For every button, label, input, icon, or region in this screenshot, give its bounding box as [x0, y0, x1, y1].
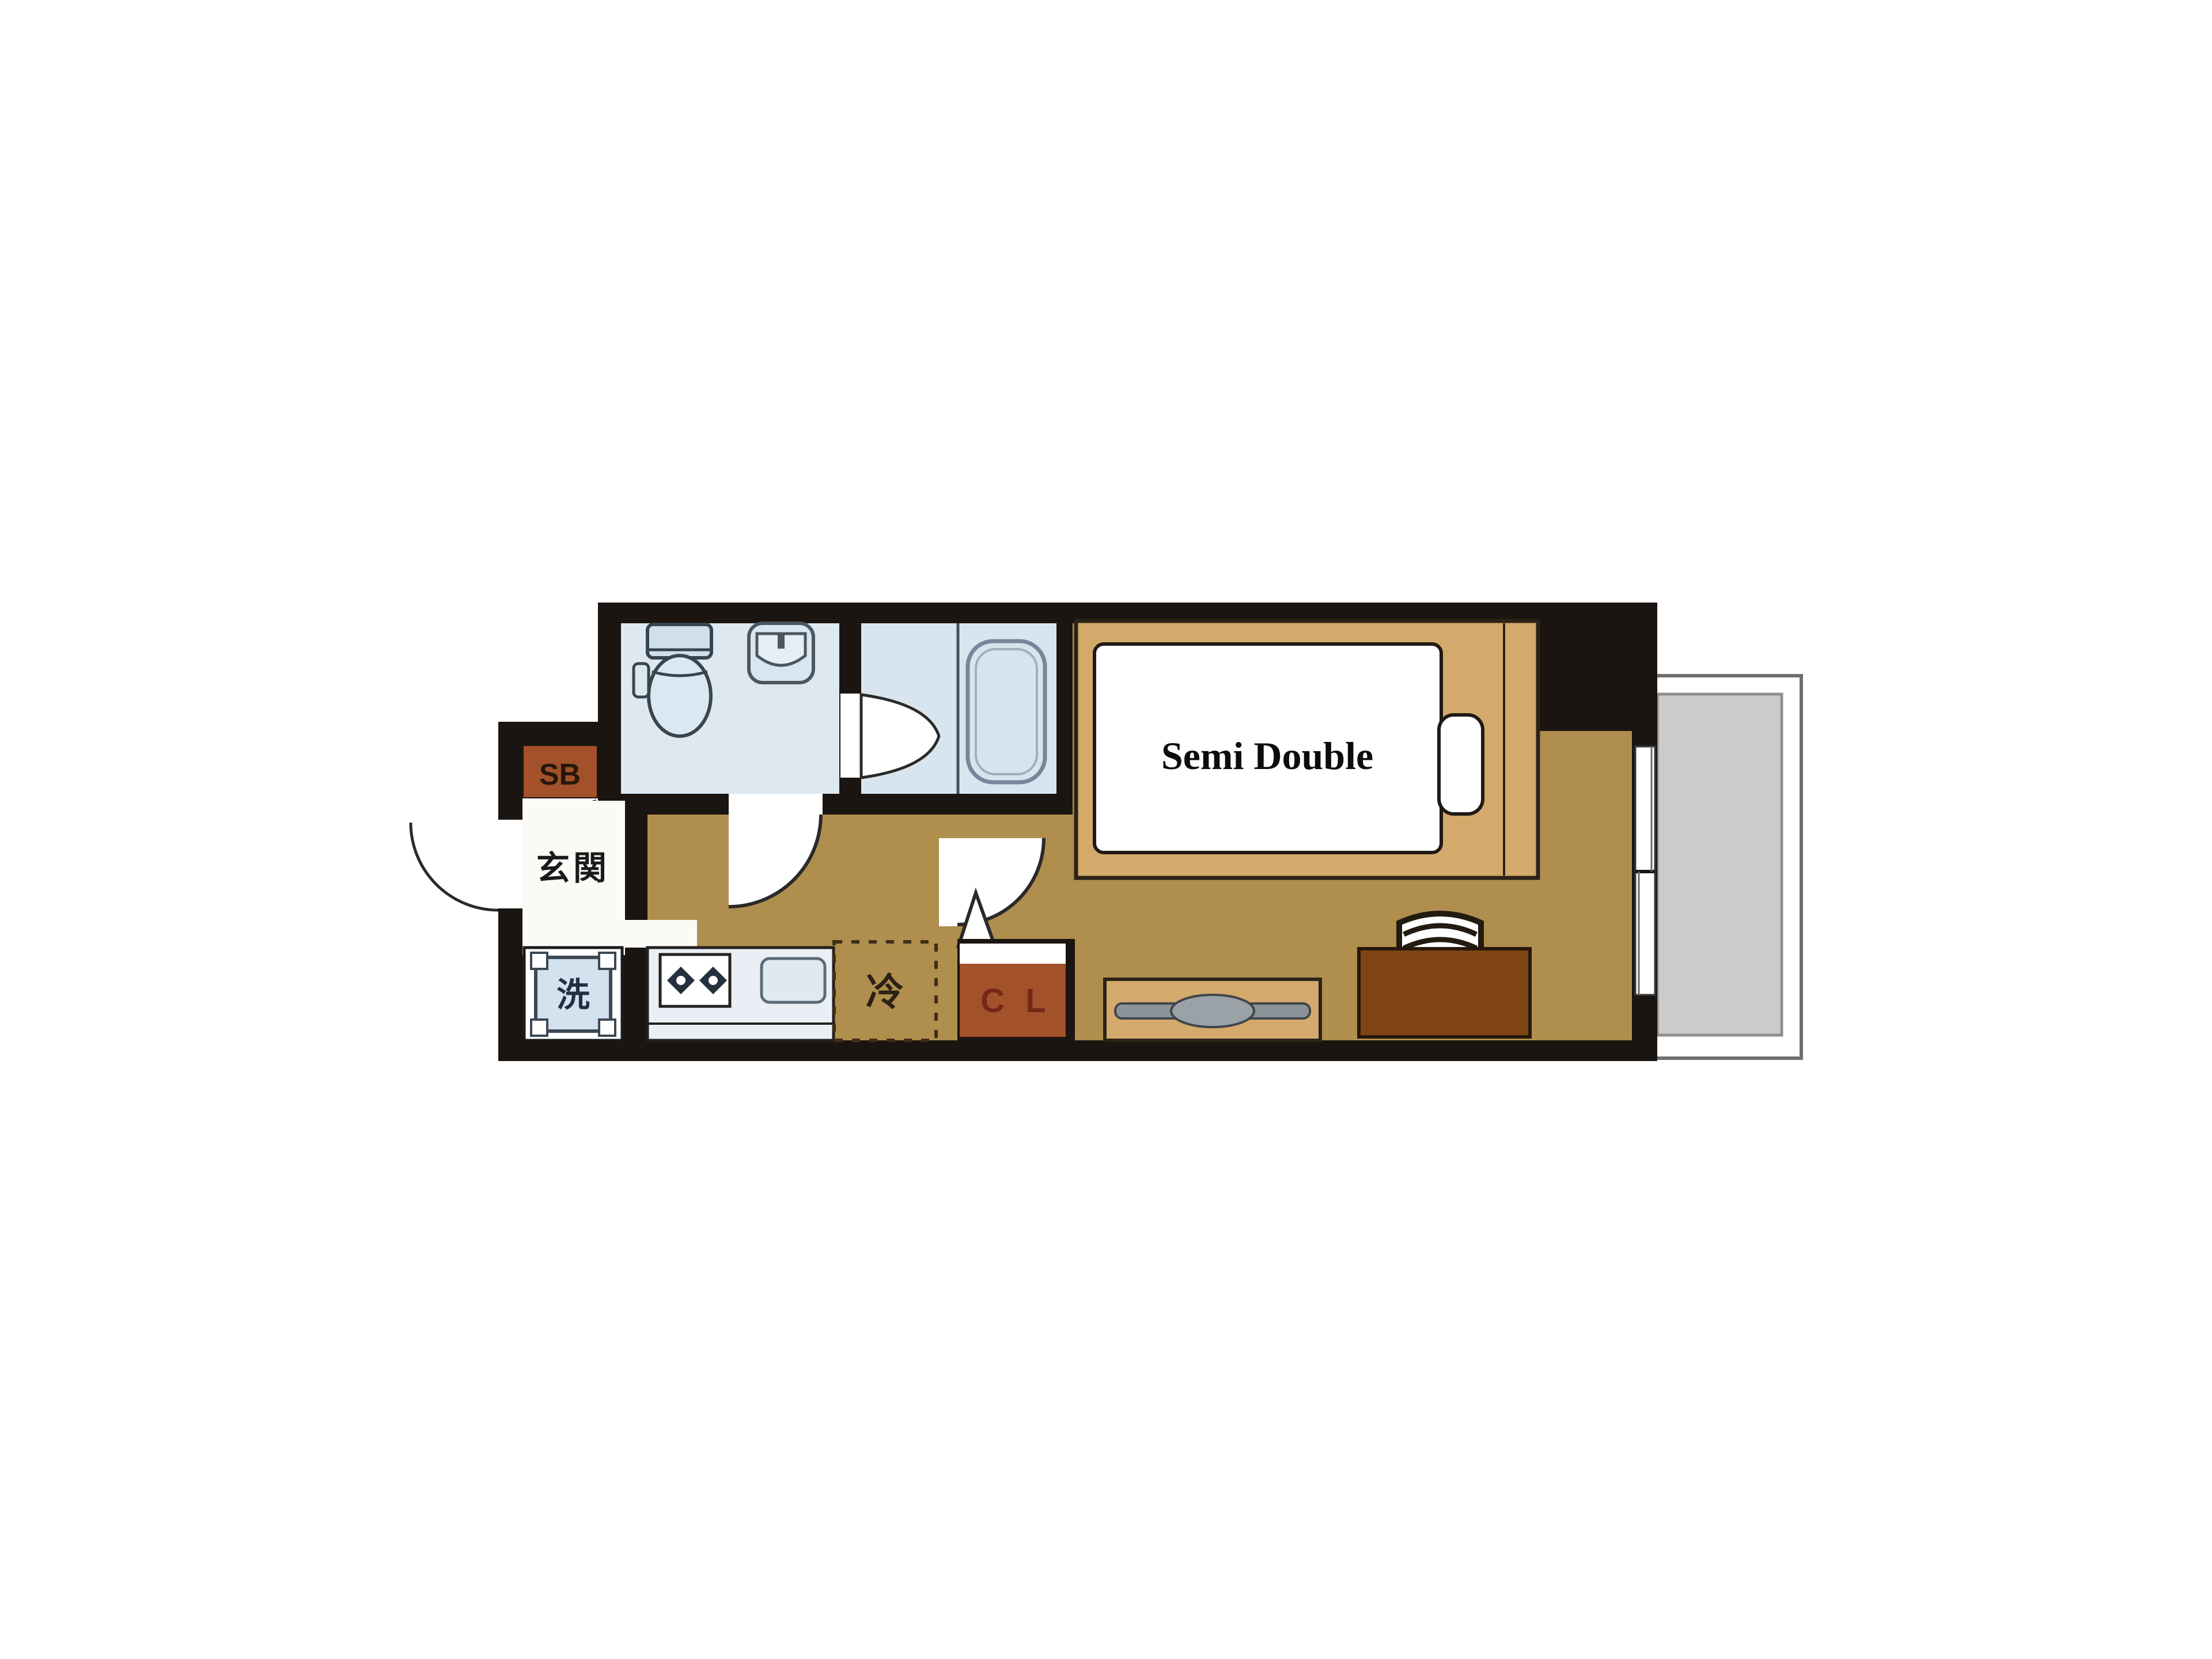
genkan-strip: [522, 920, 697, 948]
bathtub-icon: [968, 641, 1045, 782]
washing-machine: 洗: [524, 948, 622, 1040]
shoe-box-label: SB: [539, 758, 581, 791]
balcony: [1655, 676, 1801, 1058]
floor-plan: SB 玄関 洗: [0, 0, 2212, 1659]
bed-label: Semi Double: [1161, 734, 1373, 778]
toilet-bowl: [649, 656, 711, 736]
washroom-door-gap: [729, 794, 823, 815]
washing-machine-label: 洗: [556, 976, 590, 1014]
fridge-label: 冷: [866, 971, 904, 1013]
genkan-label: 玄関: [536, 850, 610, 887]
bathroom-door-gap: [840, 694, 861, 778]
bedroom-door-gap: [939, 838, 957, 926]
bathtub-outer: [968, 641, 1045, 782]
basin-tap: [778, 634, 785, 649]
bed: Semi Double: [1076, 621, 1538, 878]
closet-label: C L: [980, 982, 1051, 1020]
entrance-door-swing: [411, 823, 498, 910]
washer-corner: [531, 1020, 547, 1036]
balcony-floor: [1657, 694, 1782, 1035]
kitchen-sink: [762, 959, 825, 1002]
toilet-handle: [634, 664, 649, 697]
washer-corner: [599, 1020, 615, 1036]
burner-center: [676, 976, 685, 985]
kitchen-counter: [647, 948, 834, 1040]
page: SB 玄関 洗: [0, 0, 2212, 1659]
closet: C L: [957, 939, 1075, 1040]
closet-door-panel: [960, 944, 1066, 964]
washer-corner: [531, 953, 547, 969]
pillow: [1439, 715, 1483, 814]
entrance-door-gap: [498, 820, 522, 908]
burner-center: [709, 976, 718, 985]
tv-board: [1105, 979, 1320, 1040]
washer-corner: [599, 953, 615, 969]
genkan-stub-wall: [625, 801, 646, 920]
tv-center: [1171, 995, 1254, 1027]
toilet-tank: [647, 624, 711, 658]
sliding-window: [1635, 747, 1655, 995]
wash-basin-icon: [749, 623, 813, 683]
desk: [1359, 949, 1530, 1037]
